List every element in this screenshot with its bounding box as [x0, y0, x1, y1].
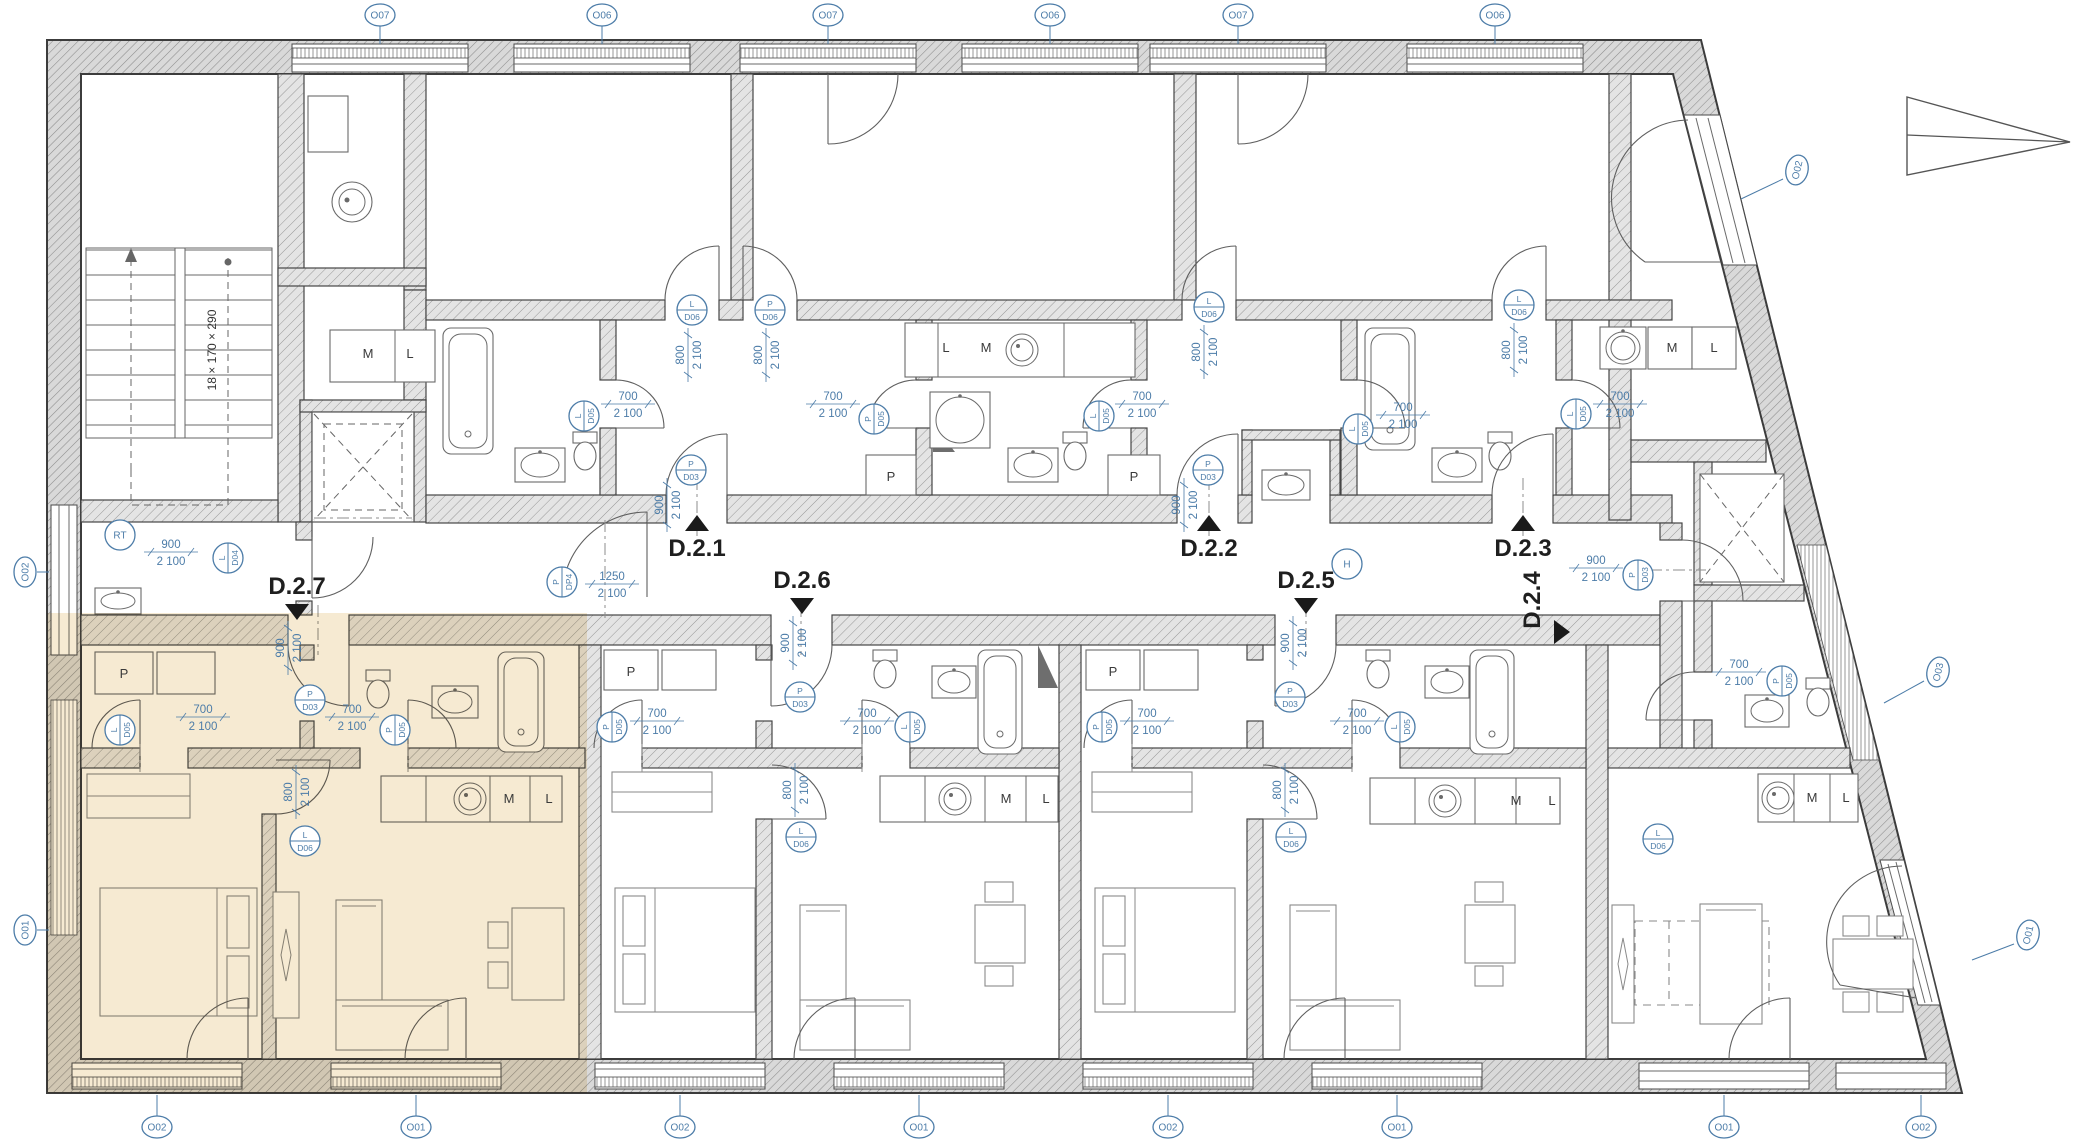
svg-text:700: 700: [1347, 708, 1366, 720]
door-marker: PD03: [676, 455, 706, 485]
room-label: M: [363, 346, 374, 361]
door-marker: LD05: [1385, 712, 1415, 742]
window-marker: O03: [1884, 655, 1952, 703]
svg-text:D.2.1: D.2.1: [668, 535, 725, 562]
svg-text:D05: D05: [614, 719, 624, 735]
svg-text:L: L: [1517, 294, 1522, 304]
svg-text:O01: O01: [21, 920, 32, 939]
north-arrow: [1907, 97, 2070, 175]
door-marker: PD05: [859, 404, 889, 434]
svg-text:L: L: [1347, 426, 1357, 431]
svg-text:D03: D03: [683, 472, 699, 482]
door-marker: LD05: [105, 715, 135, 745]
svg-text:O01: O01: [407, 1123, 426, 1134]
window-marker: O02: [142, 1095, 172, 1138]
svg-text:P: P: [384, 727, 394, 733]
svg-text:P: P: [1627, 572, 1637, 578]
dimension-label: 7002 100: [630, 708, 684, 737]
svg-text:D.2.7: D.2.7: [268, 573, 325, 600]
door-marker: LD05: [1084, 401, 1114, 431]
svg-text:L: L: [1088, 413, 1098, 418]
door-marker: LD05: [569, 401, 599, 431]
svg-text:O06: O06: [593, 11, 612, 22]
window-marker: O01: [1382, 1095, 1412, 1138]
door-marker: LD06: [1643, 824, 1673, 854]
window-marker: O06: [1035, 4, 1065, 44]
room-label: L: [1710, 340, 1717, 355]
room-label: L: [1842, 790, 1849, 805]
svg-text:O02: O02: [21, 562, 32, 581]
room-label: L: [1042, 791, 1049, 806]
svg-text:O07: O07: [1229, 11, 1248, 22]
room-label: L: [545, 791, 552, 806]
door-marker: LD06: [1194, 292, 1224, 322]
dimension-label: 8002 100: [675, 328, 704, 382]
svg-text:700: 700: [1393, 402, 1412, 414]
svg-text:2 100: 2 100: [189, 721, 218, 733]
svg-text:1250: 1250: [599, 571, 625, 583]
svg-text:D.2.3: D.2.3: [1494, 535, 1551, 562]
svg-text:O01: O01: [1388, 1123, 1407, 1134]
svg-text:D05: D05: [1104, 719, 1114, 735]
svg-text:D03: D03: [1200, 472, 1216, 482]
svg-text:O01: O01: [910, 1123, 929, 1134]
svg-text:D06: D06: [1283, 839, 1299, 849]
door-marker: PD03: [1275, 682, 1305, 712]
svg-text:800: 800: [1501, 340, 1513, 359]
window-marker: O02: [14, 557, 49, 587]
svg-text:2 100: 2 100: [1725, 676, 1754, 688]
dimension-label: 8002 100: [1191, 325, 1220, 379]
svg-text:P: P: [1091, 724, 1101, 730]
door-marker: PD03: [1623, 560, 1653, 590]
svg-text:2 100: 2 100: [157, 556, 186, 568]
window-marker: O01: [401, 1095, 431, 1138]
dimension-label: 9002 100: [780, 616, 809, 670]
svg-text:2 100: 2 100: [1606, 408, 1635, 420]
svg-text:2 100: 2 100: [853, 725, 882, 737]
door-marker: LD06: [786, 822, 816, 852]
room-label: M: [1807, 790, 1818, 805]
room-label: M: [1001, 791, 1012, 806]
svg-text:700: 700: [647, 708, 666, 720]
dimension-label: 7002 100: [1330, 708, 1384, 737]
svg-text:D05: D05: [397, 722, 407, 738]
svg-text:O06: O06: [1041, 11, 1060, 22]
svg-text:L: L: [1565, 411, 1575, 416]
room-label: P: [887, 469, 896, 484]
svg-text:2 100: 2 100: [1289, 776, 1301, 805]
unit-label: D.2.5: [1277, 567, 1334, 614]
svg-text:2 100: 2 100: [614, 408, 643, 420]
room-label: M: [981, 340, 992, 355]
utility-marker: RT: [105, 520, 135, 550]
window-marker: O02: [1906, 1095, 1936, 1138]
svg-text:2 100: 2 100: [300, 778, 312, 807]
svg-text:L: L: [1656, 828, 1661, 838]
svg-text:P: P: [1287, 686, 1293, 696]
svg-text:P: P: [688, 459, 694, 469]
svg-text:P: P: [863, 416, 873, 422]
svg-text:2 100: 2 100: [643, 725, 672, 737]
window-marker: O02: [1153, 1095, 1183, 1138]
svg-text:L: L: [109, 727, 119, 732]
door-marker: PD03: [1193, 455, 1223, 485]
room-label: M: [1511, 793, 1522, 808]
svg-text:900: 900: [654, 495, 666, 514]
svg-text:P: P: [307, 689, 313, 699]
dimension-label: 7002 100: [840, 708, 894, 737]
door-marker: LD06: [677, 295, 707, 325]
door-marker: PDP4: [547, 567, 577, 597]
svg-text:L: L: [1389, 724, 1399, 729]
svg-text:L: L: [573, 413, 583, 418]
svg-text:2 100: 2 100: [1297, 629, 1309, 658]
svg-text:O07: O07: [819, 11, 838, 22]
door-marker: PD05: [1767, 666, 1797, 696]
svg-text:P: P: [797, 686, 803, 696]
dimension-label: 8002 100: [782, 763, 811, 817]
window-marker: O02: [665, 1095, 695, 1138]
door-marker: PD05: [597, 712, 627, 742]
svg-text:O07: O07: [371, 11, 390, 22]
svg-text:2 100: 2 100: [1518, 336, 1530, 365]
door-marker: PD05: [1087, 712, 1117, 742]
svg-text:D05: D05: [912, 719, 922, 735]
svg-text:P: P: [767, 299, 773, 309]
highlight-overlay: [47, 613, 587, 1093]
svg-text:800: 800: [675, 345, 687, 364]
window-marker: O07: [813, 4, 843, 44]
svg-text:2 100: 2 100: [292, 634, 304, 663]
svg-text:2 100: 2 100: [797, 629, 809, 658]
svg-text:D06: D06: [762, 312, 778, 322]
window-marker: O02: [1741, 153, 1811, 199]
svg-text:900: 900: [780, 633, 792, 652]
dimension-label: 8002 100: [1501, 323, 1530, 377]
dimension-label: 8002 100: [753, 328, 782, 382]
room-label: L: [1548, 793, 1555, 808]
svg-text:900: 900: [275, 638, 287, 657]
room-label: P: [120, 666, 129, 681]
svg-text:O01: O01: [1715, 1123, 1734, 1134]
svg-text:O02: O02: [1159, 1123, 1178, 1134]
svg-text:700: 700: [193, 704, 212, 716]
svg-text:900: 900: [1586, 555, 1605, 567]
svg-text:D.2.6: D.2.6: [773, 567, 830, 594]
svg-text:D05: D05: [1402, 719, 1412, 735]
svg-text:D.2.4: D.2.4: [1519, 571, 1546, 629]
svg-text:800: 800: [1191, 342, 1203, 361]
svg-text:700: 700: [857, 708, 876, 720]
svg-text:O02: O02: [1912, 1123, 1931, 1134]
svg-text:D05: D05: [122, 722, 132, 738]
svg-text:2 100: 2 100: [598, 588, 627, 600]
svg-text:D03: D03: [302, 702, 318, 712]
window-marker: O06: [1480, 4, 1510, 44]
floor-plan-page: O07O06O07O06O07O06O02O01O02O01O02O01O01O…: [0, 0, 2073, 1144]
svg-text:P: P: [551, 579, 561, 585]
door-marker: PD03: [785, 682, 815, 712]
svg-text:700: 700: [1132, 391, 1151, 403]
svg-text:D06: D06: [1511, 307, 1527, 317]
dimension-label: 7002 100: [1115, 391, 1169, 420]
door-marker: LD05: [1561, 399, 1591, 429]
svg-text:L: L: [1289, 826, 1294, 836]
svg-text:2 100: 2 100: [1343, 725, 1372, 737]
room-label: M: [504, 791, 515, 806]
svg-text:D.2.2: D.2.2: [1180, 535, 1237, 562]
stair-dimension-label: 18 × 170 × 290: [205, 309, 219, 390]
dimension-label: 9002 100: [654, 478, 683, 532]
svg-text:2 100: 2 100: [1128, 408, 1157, 420]
unit-label: D.2.2: [1180, 515, 1237, 562]
svg-text:900: 900: [1171, 495, 1183, 514]
dimension-label: 8002 100: [1272, 763, 1301, 817]
svg-text:D05: D05: [1784, 673, 1794, 689]
dimension-label: 9002 100: [144, 539, 198, 568]
dimension-label: 12502 100: [585, 571, 639, 600]
door-marker: PD03: [295, 685, 325, 715]
unit-label: D.2.3: [1494, 515, 1551, 562]
svg-text:700: 700: [1610, 391, 1629, 403]
svg-text:O06: O06: [1486, 11, 1505, 22]
svg-text:L: L: [1207, 296, 1212, 306]
door-marker: PD06: [755, 295, 785, 325]
svg-text:900: 900: [161, 539, 180, 551]
svg-text:O02: O02: [148, 1123, 167, 1134]
window-marker: O01: [1972, 918, 2042, 960]
svg-text:700: 700: [342, 704, 361, 716]
unit-label: D.2.6: [773, 567, 830, 614]
svg-text:D06: D06: [297, 843, 313, 853]
door-marker: LD04: [213, 543, 243, 573]
svg-text:L: L: [303, 830, 308, 840]
svg-text:900: 900: [1280, 633, 1292, 652]
svg-text:D.2.5: D.2.5: [1277, 567, 1334, 594]
svg-text:2 100: 2 100: [1389, 419, 1418, 431]
dimension-label: 9002 100: [1280, 616, 1309, 670]
svg-text:2 100: 2 100: [671, 491, 683, 520]
svg-text:2 100: 2 100: [1208, 338, 1220, 367]
dimension-label: 7002 100: [601, 391, 655, 420]
svg-text:O02: O02: [671, 1123, 690, 1134]
door-marker: PD05: [380, 715, 410, 745]
svg-text:P: P: [1205, 459, 1211, 469]
utility-marker: H: [1332, 549, 1362, 579]
svg-text:P: P: [1771, 678, 1781, 684]
svg-text:P: P: [601, 724, 611, 730]
svg-text:700: 700: [823, 391, 842, 403]
room-label: P: [1109, 664, 1118, 679]
room-label: L: [406, 346, 413, 361]
svg-text:D06: D06: [684, 312, 700, 322]
svg-text:700: 700: [1137, 708, 1156, 720]
dimension-label: 9002 100: [1569, 555, 1623, 584]
door-marker: LD06: [1276, 822, 1306, 852]
svg-text:D03: D03: [792, 699, 808, 709]
svg-text:D05: D05: [1578, 406, 1588, 422]
svg-text:2 100: 2 100: [819, 408, 848, 420]
door-marker: LD06: [1504, 290, 1534, 320]
door-marker: LD05: [895, 712, 925, 742]
window-marker: O06: [587, 4, 617, 44]
svg-text:2 100: 2 100: [338, 721, 367, 733]
window-marker: O07: [1223, 4, 1253, 44]
svg-text:D05: D05: [876, 411, 886, 427]
window-marker: O07: [365, 4, 395, 44]
svg-text:DP4: DP4: [564, 573, 574, 590]
room-label: P: [627, 664, 636, 679]
door-marker: LD05: [1343, 414, 1373, 444]
unit-label: D.2.7: [268, 573, 325, 620]
svg-text:700: 700: [1729, 659, 1748, 671]
svg-text:L: L: [899, 724, 909, 729]
svg-text:2 100: 2 100: [799, 776, 811, 805]
svg-text:L: L: [690, 299, 695, 309]
svg-text:L: L: [217, 555, 227, 560]
dimension-label: 7002 100: [1120, 708, 1174, 737]
svg-text:2 100: 2 100: [1188, 491, 1200, 520]
svg-text:700: 700: [618, 391, 637, 403]
room-label: L: [942, 340, 949, 355]
svg-text:D03: D03: [1282, 699, 1298, 709]
svg-text:D03: D03: [1640, 567, 1650, 583]
svg-text:RT: RT: [113, 531, 126, 542]
svg-text:2 100: 2 100: [1582, 572, 1611, 584]
svg-text:D06: D06: [1201, 309, 1217, 319]
svg-text:L: L: [799, 826, 804, 836]
svg-text:2 100: 2 100: [692, 341, 704, 370]
svg-text:D06: D06: [793, 839, 809, 849]
svg-text:D05: D05: [586, 408, 596, 424]
room-label: M: [1667, 340, 1678, 355]
dimension-label: 9002 100: [1171, 478, 1200, 532]
svg-text:800: 800: [782, 780, 794, 799]
svg-text:2 100: 2 100: [770, 341, 782, 370]
dimension-label: 7002 100: [1712, 659, 1766, 688]
svg-text:2 100: 2 100: [1133, 725, 1162, 737]
svg-text:800: 800: [1272, 780, 1284, 799]
window-marker: O01: [14, 915, 49, 945]
dimension-label: 7002 100: [806, 391, 860, 420]
svg-text:D05: D05: [1101, 408, 1111, 424]
unit-label: D.2.1: [668, 515, 725, 562]
room-label: P: [1130, 469, 1139, 484]
door-marker: LD06: [290, 826, 320, 856]
floor-plan-canvas: O07O06O07O06O07O06O02O01O02O01O02O01O01O…: [0, 0, 2073, 1144]
svg-text:D04: D04: [230, 550, 240, 566]
window-marker: O01: [1709, 1095, 1739, 1138]
window-marker: O01: [904, 1095, 934, 1138]
svg-text:800: 800: [753, 345, 765, 364]
svg-text:H: H: [1343, 560, 1350, 571]
svg-text:D06: D06: [1650, 841, 1666, 851]
svg-text:800: 800: [283, 782, 295, 801]
svg-text:D05: D05: [1360, 421, 1370, 437]
